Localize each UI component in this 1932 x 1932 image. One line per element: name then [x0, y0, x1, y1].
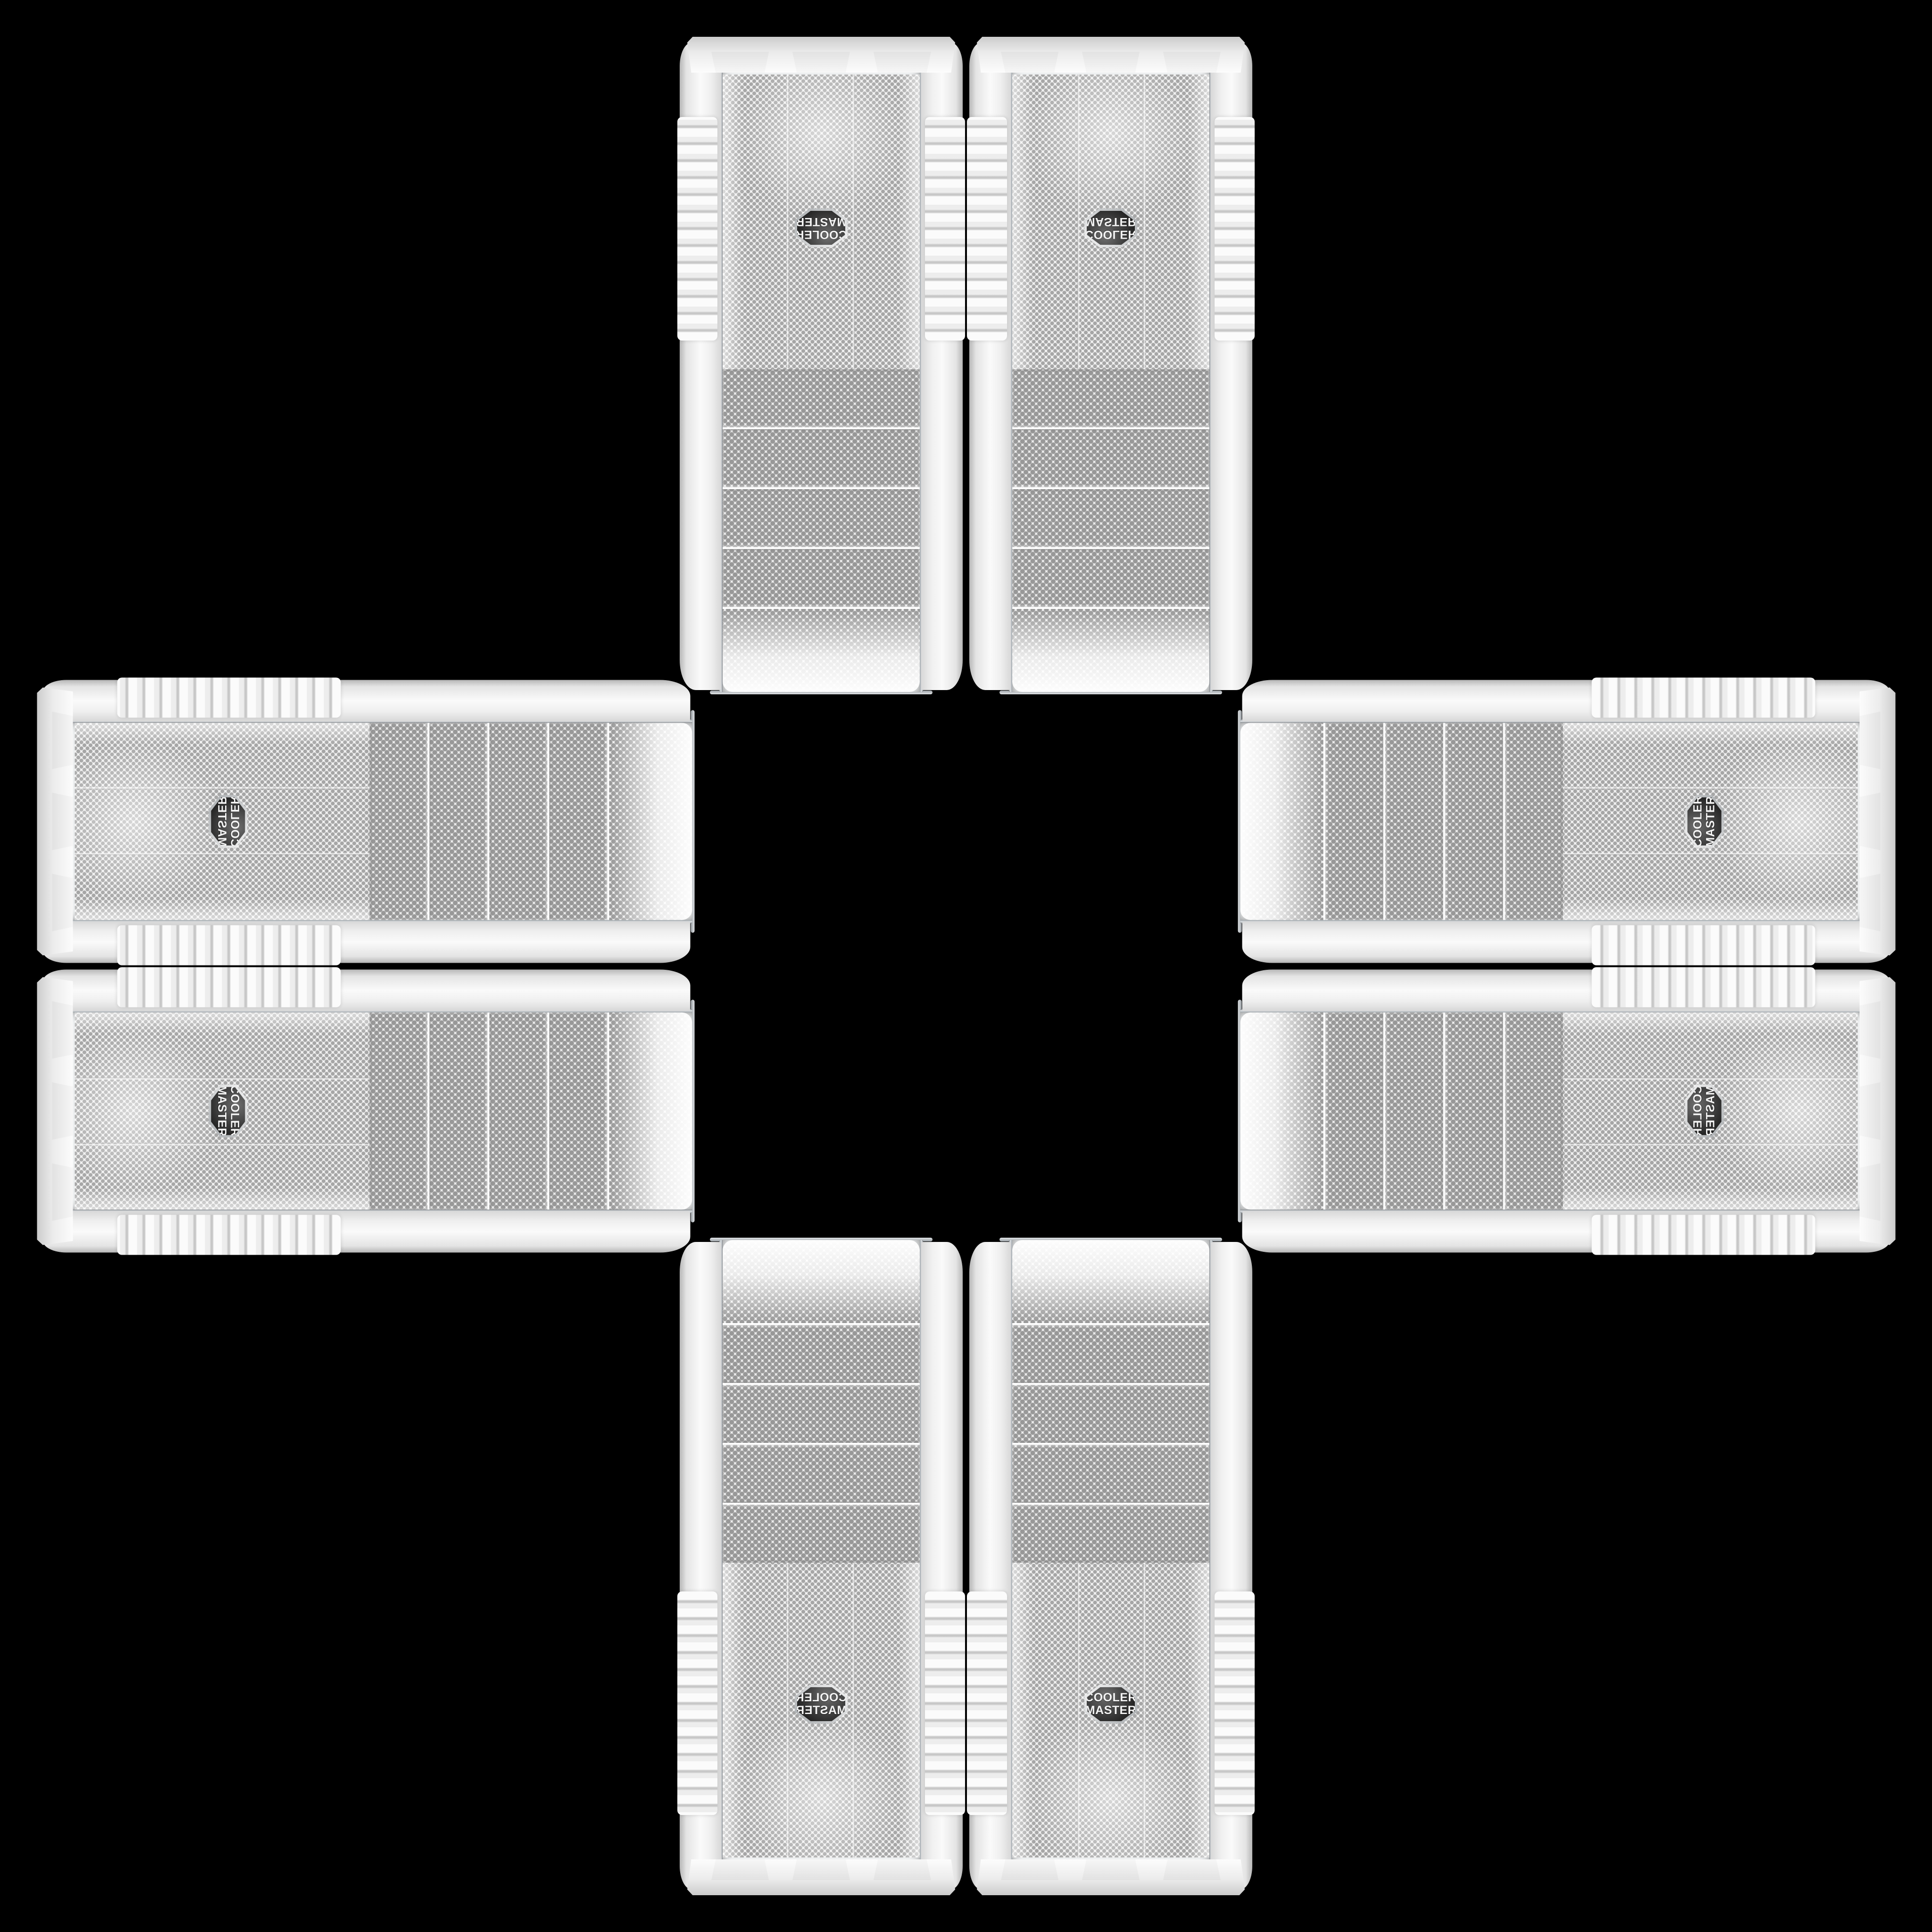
case-front-panel: COOLER MASTER [1011, 1240, 1211, 1891]
cooler-master-badge-face: COOLER MASTER [797, 211, 845, 245]
case-side-rail-left [969, 1242, 1011, 1890]
case-bottom-cap [977, 37, 1245, 73]
brand-text-line2: MASTER [1085, 215, 1137, 228]
rail-grip-ribs [1215, 117, 1255, 341]
front-mesh-panel: COOLER MASTER [75, 723, 370, 920]
drive-bay-cover [1012, 369, 1209, 429]
rail-grip-ribs [1592, 678, 1815, 718]
brand-text-line1: COOLER [795, 228, 847, 241]
case-side-rail-right [43, 1211, 691, 1253]
case-side-rail-right [1242, 680, 1890, 722]
drive-bay-cover [1383, 1013, 1443, 1210]
cooler-master-badge: COOLER MASTER [209, 795, 248, 848]
case-bottom-cap [37, 977, 73, 1245]
drive-bay-cover [1443, 723, 1503, 920]
pc-case: COOLER MASTER [680, 37, 963, 695]
front-top-mesh-cap [1241, 1013, 1324, 1210]
pc-case: COOLER MASTER [37, 970, 695, 1253]
case-side-rail-left [921, 42, 963, 690]
front-mesh-panel: COOLER MASTER [723, 75, 920, 369]
front-mesh-panel: COOLER MASTER [1563, 723, 1858, 920]
cooler-master-badge-face: COOLER MASTER [1087, 1687, 1135, 1721]
drive-bay-cover [723, 1503, 920, 1563]
drive-bay-cover [1012, 1383, 1209, 1443]
drive-bay-cover [1012, 489, 1209, 549]
drive-bay-covers [1324, 1013, 1563, 1210]
drive-bay-covers [370, 723, 609, 920]
case-side-rail-right [43, 680, 691, 722]
brand-text-line1: COOLER [228, 1085, 241, 1137]
case-side-rail-right [1242, 1211, 1890, 1253]
cooler-master-badge-face: COOLER MASTER [211, 798, 245, 846]
case-slot-top-left: COOLER MASTER [680, 37, 963, 695]
drive-bay-cover [723, 1383, 920, 1443]
pc-case: COOLER MASTER [680, 1237, 963, 1895]
front-top-mesh-cap [723, 1240, 920, 1323]
drive-bay-cover [723, 1323, 920, 1383]
drive-bay-cover [430, 1013, 490, 1210]
drive-bay-cover [550, 1013, 609, 1210]
drive-bay-cover [1012, 429, 1209, 489]
brand-text-line1: COOLER [228, 796, 241, 848]
drive-bay-cover [1012, 1323, 1209, 1383]
brand-text-line2: MASTER [796, 1704, 847, 1717]
case-front-panel: COOLER MASTER [1241, 1011, 1892, 1211]
drive-bay-cover [490, 723, 550, 920]
case-slot-right-bottom: COOLER MASTER [1238, 970, 1896, 1253]
cooler-master-badge: COOLER MASTER [1084, 1685, 1137, 1724]
rail-grip-ribs [677, 1591, 717, 1815]
case-side-rail-left [969, 42, 1011, 690]
brand-text-line2: MASTER [1705, 1085, 1717, 1137]
rail-grip-ribs [117, 678, 341, 718]
rail-grip-ribs [117, 967, 341, 1008]
rail-grip-ribs [1592, 1215, 1815, 1255]
cooler-master-badge: COOLER MASTER [1685, 1085, 1724, 1138]
cooler-master-badge-face: COOLER MASTER [1688, 1087, 1722, 1135]
pc-case: COOLER MASTER [37, 680, 695, 963]
front-top-mesh-cap [609, 723, 692, 920]
brand-text-line2: MASTER [1085, 1704, 1137, 1717]
case-bottom-cap [1860, 977, 1896, 1245]
case-slot-left-top: COOLER MASTER [37, 680, 695, 963]
cooler-master-badge: COOLER MASTER [1685, 795, 1724, 848]
drive-bay-cover [550, 723, 609, 920]
drive-bay-cover [1503, 1013, 1563, 1210]
brand-text-line1: COOLER [1692, 1085, 1705, 1137]
drive-bay-cover [370, 1013, 430, 1210]
cooler-master-badge: COOLER MASTER [795, 208, 848, 247]
drive-bay-cover [1324, 723, 1383, 920]
pc-case: COOLER MASTER [969, 37, 1252, 695]
rail-grip-ribs [1592, 925, 1815, 966]
front-mesh-panel: COOLER MASTER [75, 1013, 370, 1210]
case-front-panel: COOLER MASTER [1241, 722, 1892, 922]
cooler-master-badge-face: COOLER MASTER [211, 1087, 245, 1135]
drive-bay-cover [1324, 1013, 1383, 1210]
front-top-mesh-cap [609, 1013, 692, 1210]
case-side-rail-left [1242, 922, 1890, 963]
rail-grip-ribs [117, 1215, 341, 1255]
case-side-rail-right [680, 1242, 721, 1890]
drive-bay-cover [1443, 1013, 1503, 1210]
front-mesh-panel: COOLER MASTER [1012, 1563, 1209, 1857]
rail-grip-ribs [117, 925, 341, 966]
case-side-rail-right [1211, 42, 1252, 690]
collage-canvas: COOLER MASTER [0, 0, 1932, 1932]
front-top-mesh-cap [1012, 609, 1209, 692]
front-top-mesh-cap [1012, 1240, 1209, 1323]
drive-bay-cover [723, 429, 920, 489]
brand-text-line2: MASTER [216, 796, 228, 847]
case-slot-bottom-left: COOLER MASTER [680, 1237, 963, 1895]
drive-bay-cover [370, 723, 430, 920]
brand-text-line2: MASTER [796, 215, 847, 228]
drive-bay-covers [723, 369, 920, 609]
brand-text-line2: MASTER [216, 1085, 228, 1137]
drive-bay-cover [723, 369, 920, 429]
pc-case: COOLER MASTER [1238, 680, 1896, 963]
drive-bay-covers [1324, 723, 1563, 920]
drive-bay-covers [723, 1323, 920, 1563]
pc-case: COOLER MASTER [1238, 970, 1896, 1253]
rail-grip-ribs [925, 1591, 965, 1815]
front-mesh-panel: COOLER MASTER [1563, 1013, 1858, 1210]
drive-bay-cover [490, 1013, 550, 1210]
front-mesh-panel: COOLER MASTER [723, 1563, 920, 1857]
case-front-panel: COOLER MASTER [721, 1240, 921, 1891]
cooler-master-badge-face: COOLER MASTER [1688, 798, 1722, 846]
brand-text-line1: COOLER [1085, 228, 1137, 241]
drive-bay-cover [723, 1443, 920, 1503]
drive-bay-cover [723, 489, 920, 549]
brand-text-line2: MASTER [1705, 796, 1717, 847]
case-slot-bottom-right: COOLER MASTER [969, 1237, 1252, 1895]
rail-grip-ribs [677, 117, 717, 341]
case-side-rail-right [1211, 1242, 1252, 1890]
rail-grip-ribs [967, 1591, 1007, 1815]
case-front-panel: COOLER MASTER [721, 41, 921, 692]
case-front-panel: COOLER MASTER [41, 722, 692, 922]
case-bottom-cap [687, 1859, 955, 1895]
cooler-master-badge-face: COOLER MASTER [797, 1687, 845, 1721]
pc-case: COOLER MASTER [969, 1237, 1252, 1895]
drive-bay-cover [1012, 1503, 1209, 1563]
rail-grip-ribs [925, 117, 965, 341]
brand-text-line1: COOLER [1085, 1691, 1137, 1704]
drive-bay-cover [1012, 1443, 1209, 1503]
cooler-master-badge: COOLER MASTER [209, 1085, 248, 1138]
case-bottom-cap [37, 688, 73, 956]
drive-bay-cover [1503, 723, 1563, 920]
case-side-rail-left [43, 922, 691, 963]
front-mesh-panel: COOLER MASTER [1012, 75, 1209, 369]
case-slot-left-bottom: COOLER MASTER [37, 970, 695, 1253]
front-top-mesh-cap [1241, 723, 1324, 920]
drive-bay-cover [1012, 549, 1209, 609]
case-side-rail-left [921, 1242, 963, 1890]
rail-grip-ribs [967, 117, 1007, 341]
drive-bay-covers [370, 1013, 609, 1210]
front-top-mesh-cap [723, 609, 920, 692]
brand-text-line1: COOLER [795, 1691, 847, 1704]
rail-grip-ribs [1215, 1591, 1255, 1815]
drive-bay-covers [1012, 1323, 1209, 1563]
case-front-panel: COOLER MASTER [41, 1011, 692, 1211]
cooler-master-badge: COOLER MASTER [1084, 208, 1137, 247]
case-side-rail-left [1242, 970, 1890, 1011]
drive-bay-cover [723, 549, 920, 609]
cooler-master-badge-face: COOLER MASTER [1087, 211, 1135, 245]
case-bottom-cap [1860, 688, 1896, 956]
drive-bay-covers [1012, 369, 1209, 609]
case-side-rail-right [680, 42, 721, 690]
brand-text-line1: COOLER [1692, 796, 1705, 848]
drive-bay-cover [1383, 723, 1443, 920]
drive-bay-cover [430, 723, 490, 920]
rail-grip-ribs [1592, 967, 1815, 1008]
case-side-rail-left [43, 970, 691, 1011]
case-bottom-cap [977, 1859, 1245, 1895]
case-bottom-cap [687, 37, 955, 73]
cooler-master-badge: COOLER MASTER [795, 1685, 848, 1724]
case-slot-top-right: COOLER MASTER [969, 37, 1252, 695]
case-slot-right-top: COOLER MASTER [1238, 680, 1896, 963]
case-front-panel: COOLER MASTER [1011, 41, 1211, 692]
